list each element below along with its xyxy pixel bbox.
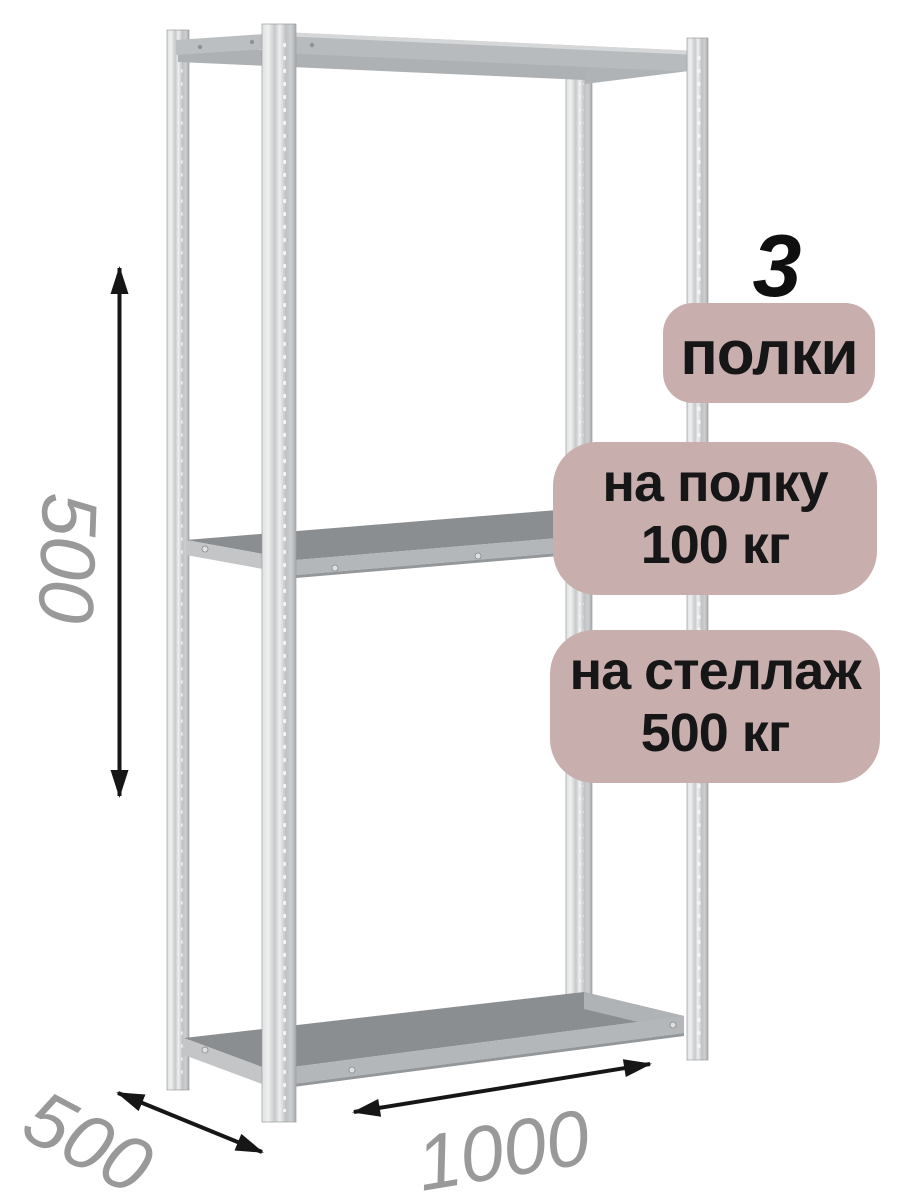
per-rack-capacity-line1: на стеллаж <box>569 640 860 702</box>
shelf-count-label: полки <box>680 318 857 389</box>
per-shelf-capacity-badge: на полку 100 кг <box>553 442 877 595</box>
per-shelf-capacity-line1: на полку <box>602 452 827 514</box>
height-dimension-label: 500 <box>19 446 117 669</box>
post-back-left <box>167 30 189 1090</box>
per-shelf-capacity-line2: 100 кг <box>641 514 790 576</box>
product-card: 500 500 1000 3 полки на полку 100 кг на … <box>0 0 900 1200</box>
per-rack-capacity-line2: 500 кг <box>641 702 790 764</box>
shelf-count-badge: полки <box>663 303 875 403</box>
shelf-bottom <box>184 992 684 1090</box>
per-rack-capacity-badge: на стеллаж 500 кг <box>550 630 880 783</box>
rack-illustration <box>0 0 900 1200</box>
post-front-left <box>262 24 296 1122</box>
shelf-count-number: 3 <box>727 216 827 316</box>
